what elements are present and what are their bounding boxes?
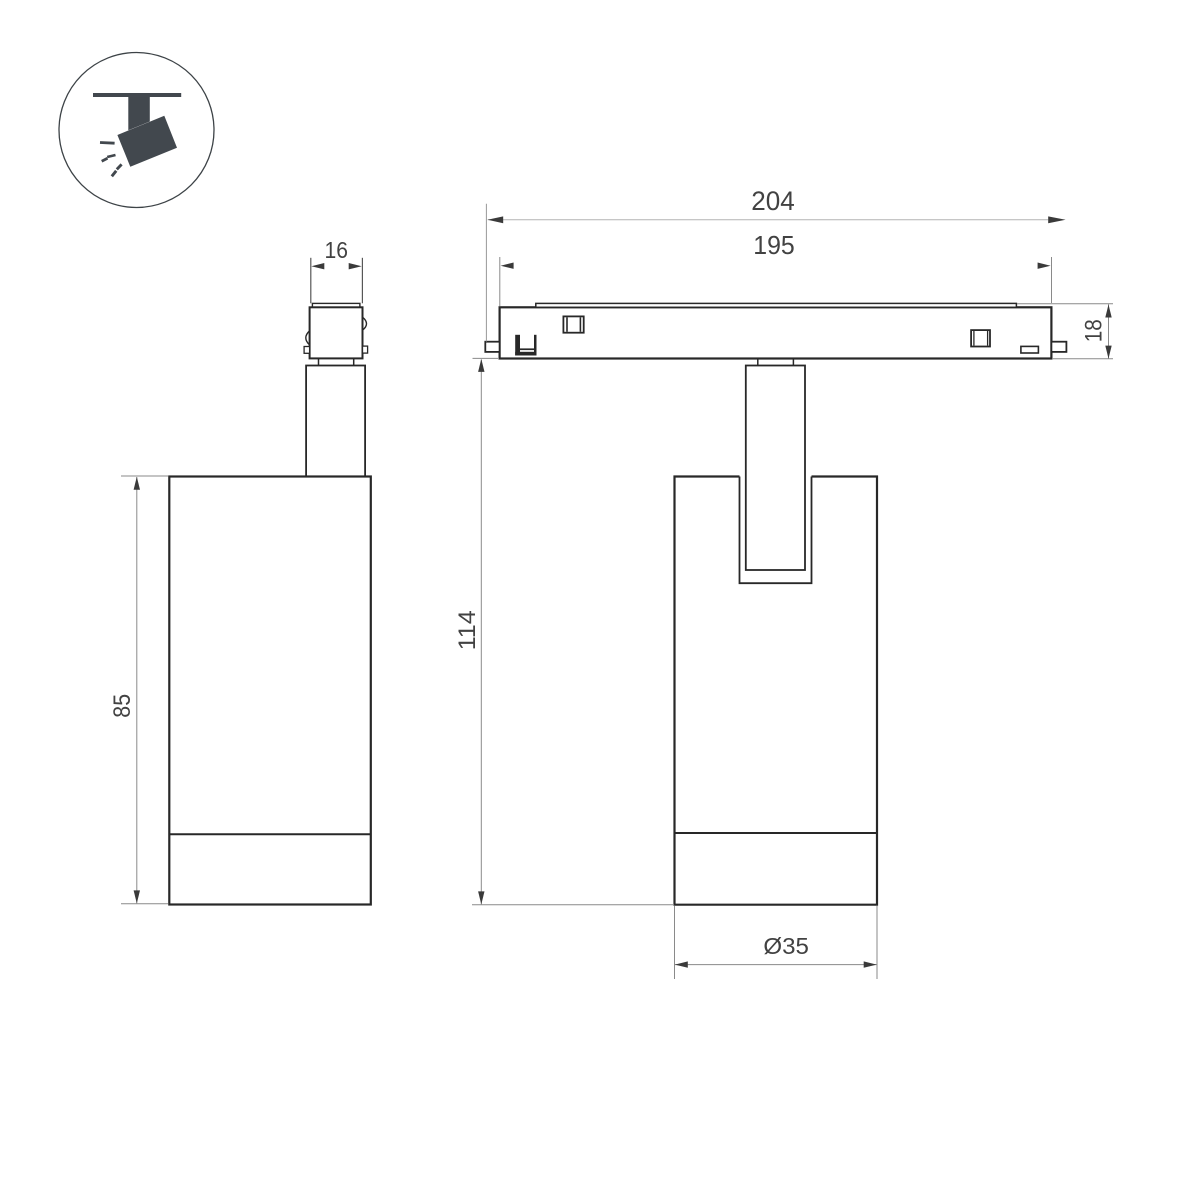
svg-text:16: 16 — [325, 237, 349, 263]
svg-text:195: 195 — [753, 230, 795, 260]
svg-text:204: 204 — [751, 186, 795, 216]
svg-text:85: 85 — [109, 694, 136, 718]
svg-text:114: 114 — [454, 610, 481, 650]
svg-text:18: 18 — [1081, 319, 1108, 342]
svg-text:Ø35: Ø35 — [763, 933, 809, 959]
